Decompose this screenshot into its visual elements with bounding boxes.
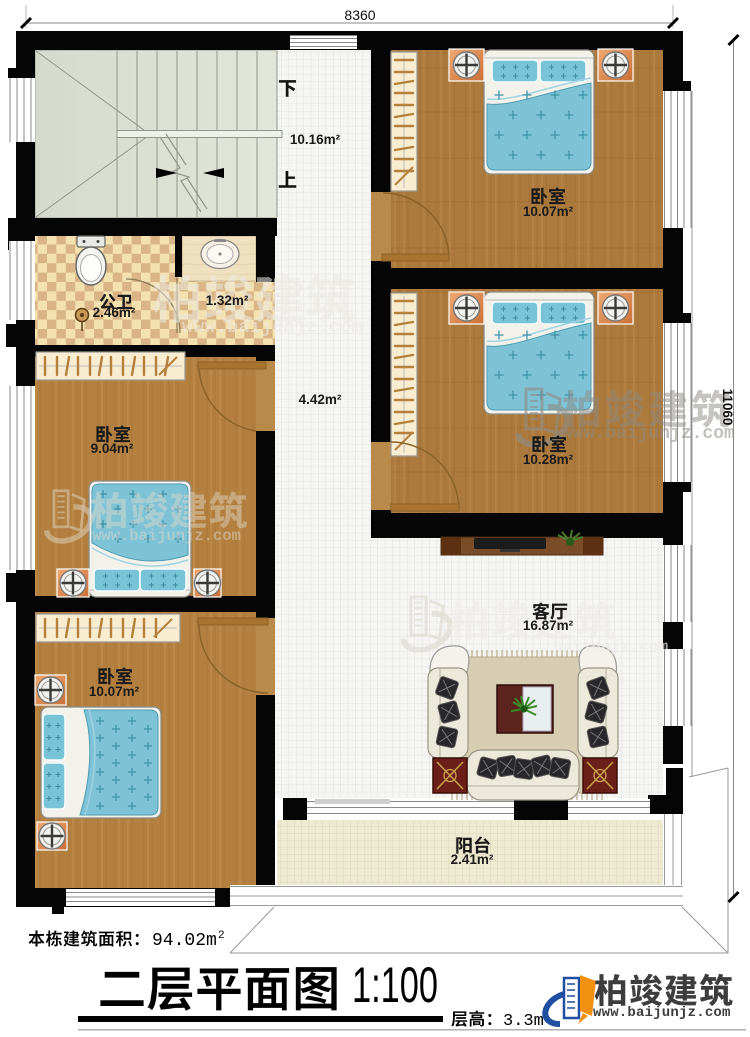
svg-text:8360: 8360: [344, 7, 375, 23]
svg-text:94.02m: 94.02m: [152, 931, 217, 951]
svg-text:2.41m²: 2.41m²: [451, 852, 494, 867]
svg-text:www.baijunjz.com: www.baijunjz.com: [593, 1005, 731, 1021]
svg-text:www.baijunjz.com: www.baijunjz.com: [92, 527, 241, 545]
svg-text:1.32m²: 1.32m²: [206, 293, 249, 308]
svg-text:10.07m²: 10.07m²: [89, 684, 140, 699]
svg-text:10.07m²: 10.07m²: [523, 204, 574, 219]
svg-text:16.87m²: 16.87m²: [523, 618, 574, 633]
svg-text:10.16m²: 10.16m²: [290, 132, 341, 147]
svg-text:3.3m: 3.3m: [503, 1012, 544, 1031]
svg-text:2: 2: [218, 930, 225, 942]
svg-text:10.28m²: 10.28m²: [523, 452, 574, 467]
svg-text:1:100: 1:100: [352, 957, 438, 1013]
svg-text:9.04m²: 9.04m²: [91, 441, 134, 456]
svg-text:www.baijunjz.com: www.baijunjz.com: [182, 318, 363, 338]
svg-text:baijunjz.com: baijunjz.com: [553, 638, 669, 656]
svg-text:4.42m²: 4.42m²: [299, 392, 342, 407]
svg-text:www.baijunjz.com: www.baijunjz.com: [562, 424, 735, 444]
svg-text:11060: 11060: [720, 389, 735, 426]
svg-text:2.46m²: 2.46m²: [93, 305, 136, 320]
